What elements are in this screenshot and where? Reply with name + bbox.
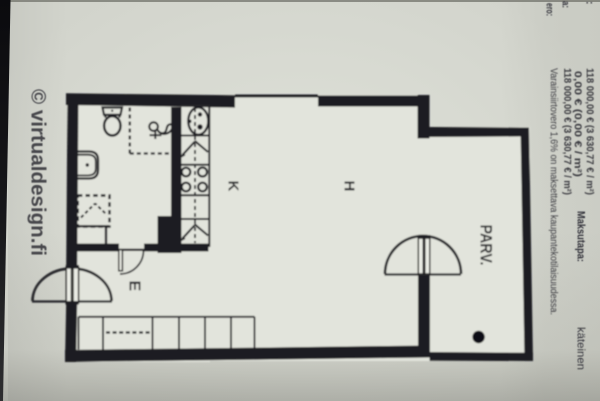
svg-text:PARV.: PARV. <box>477 225 496 266</box>
svg-text:käteinen: käteinen <box>575 327 587 370</box>
svg-text:118 000,00 € (3 630,77 € / m²): 118 000,00 € (3 630,77 € / m²) <box>561 68 572 195</box>
svg-text:E: E <box>126 281 143 292</box>
svg-text:H: H <box>341 181 358 192</box>
svg-text::: : <box>584 1 596 5</box>
svg-text:Maksutapa:: Maksutapa: <box>575 211 587 262</box>
svg-text:a:: a: <box>560 1 572 8</box>
svg-text:K: K <box>225 181 242 192</box>
svg-text:© virtualdesign.fi: © virtualdesign.fi <box>27 89 49 256</box>
svg-text:ero:: ero: <box>544 3 556 16</box>
svg-text:Varainsiirtovero 1,6% on makse: Varainsiirtovero 1,6% on maksettava kaup… <box>548 68 559 315</box>
svg-text:118 000,00 € (3 630,77 € / m²): 118 000,00 € (3 630,77 € / m²) <box>584 68 595 195</box>
svg-text:0,00 € (0,00 € / m²): 0,00 € (0,00 € / m²) <box>572 71 583 177</box>
